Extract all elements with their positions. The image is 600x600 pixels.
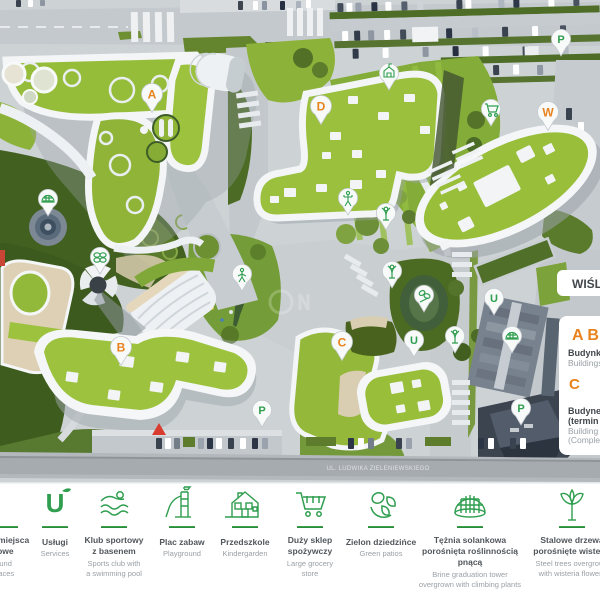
- svg-text:Przedszkole: Przedszkole: [220, 537, 269, 547]
- svg-text:P: P: [258, 405, 265, 417]
- svg-text:Tężnia solankowa: Tężnia solankowa: [434, 535, 507, 545]
- svg-text:UL. LUDWIKA ZIELENIEWSKIEGO: UL. LUDWIKA ZIELENIEWSKIEGO: [326, 466, 429, 472]
- svg-text:(Comple: (Comple: [568, 435, 600, 445]
- svg-text:(termin: (termin: [568, 416, 599, 426]
- svg-text:Budynek: Budynek: [568, 406, 600, 416]
- svg-text:Services: Services: [41, 549, 70, 558]
- svg-text:C: C: [338, 336, 347, 350]
- svg-text:P: P: [517, 403, 524, 415]
- svg-text:Buildings: Buildings: [568, 358, 600, 368]
- svg-text:Underground: Underground: [0, 559, 12, 568]
- svg-text:spożywczy: spożywczy: [288, 546, 333, 556]
- svg-text:Sports club with: Sports club with: [88, 559, 141, 568]
- svg-text:porośnięta roślinnością: porośnięta roślinnością: [422, 546, 518, 556]
- svg-text:D: D: [317, 100, 326, 114]
- svg-text:Podziemne miejsca: Podziemne miejsca: [0, 535, 29, 545]
- svg-text:Brine graduation tower: Brine graduation tower: [432, 570, 508, 579]
- svg-text:U: U: [490, 293, 498, 305]
- svg-text:z basenem: z basenem: [92, 546, 136, 556]
- svg-text:A: A: [148, 88, 157, 102]
- svg-text:Green patios: Green patios: [360, 549, 403, 558]
- svg-text:overgrown with climbing plants: overgrown with climbing plants: [419, 580, 521, 589]
- svg-text:Stalowe drzewa: Stalowe drzewa: [540, 535, 600, 545]
- svg-text:Large grocery: Large grocery: [287, 559, 334, 568]
- svg-text:Zielon dziedzińce: Zielon dziedzińce: [346, 537, 417, 547]
- svg-text:C: C: [569, 376, 580, 393]
- svg-text:W: W: [542, 106, 554, 120]
- svg-text:parkingowe: parkingowe: [0, 546, 14, 556]
- svg-text:Duży sklep: Duży sklep: [288, 535, 332, 545]
- svg-text:U: U: [410, 335, 418, 347]
- svg-text:Plac zabaw: Plac zabaw: [159, 537, 205, 547]
- svg-text:A B: A B: [572, 327, 599, 344]
- svg-text:U: U: [46, 488, 65, 518]
- svg-text:pnącą: pnącą: [458, 557, 483, 567]
- svg-text:P: P: [557, 34, 564, 46]
- svg-text:Usługi: Usługi: [42, 537, 68, 547]
- svg-text:a swimming pool: a swimming pool: [86, 569, 142, 578]
- svg-text:B: B: [117, 341, 126, 355]
- svg-text:porośnięte wisterią: porośnięte wisterią: [533, 546, 600, 556]
- svg-text:store: store: [302, 569, 319, 578]
- svg-text:Budynki: Budynki: [568, 348, 600, 358]
- svg-text:parking places: parking places: [0, 569, 14, 578]
- svg-text:Klub sportowy: Klub sportowy: [84, 535, 143, 545]
- svg-text:Playground: Playground: [163, 549, 201, 558]
- svg-text:Kindergarden: Kindergarden: [222, 549, 267, 558]
- svg-text:WIŚLANE: WIŚLANE: [572, 276, 600, 291]
- svg-text:with wisteria flowers: with wisteria flowers: [538, 569, 600, 578]
- svg-text:Steel trees overgrown: Steel trees overgrown: [536, 559, 600, 568]
